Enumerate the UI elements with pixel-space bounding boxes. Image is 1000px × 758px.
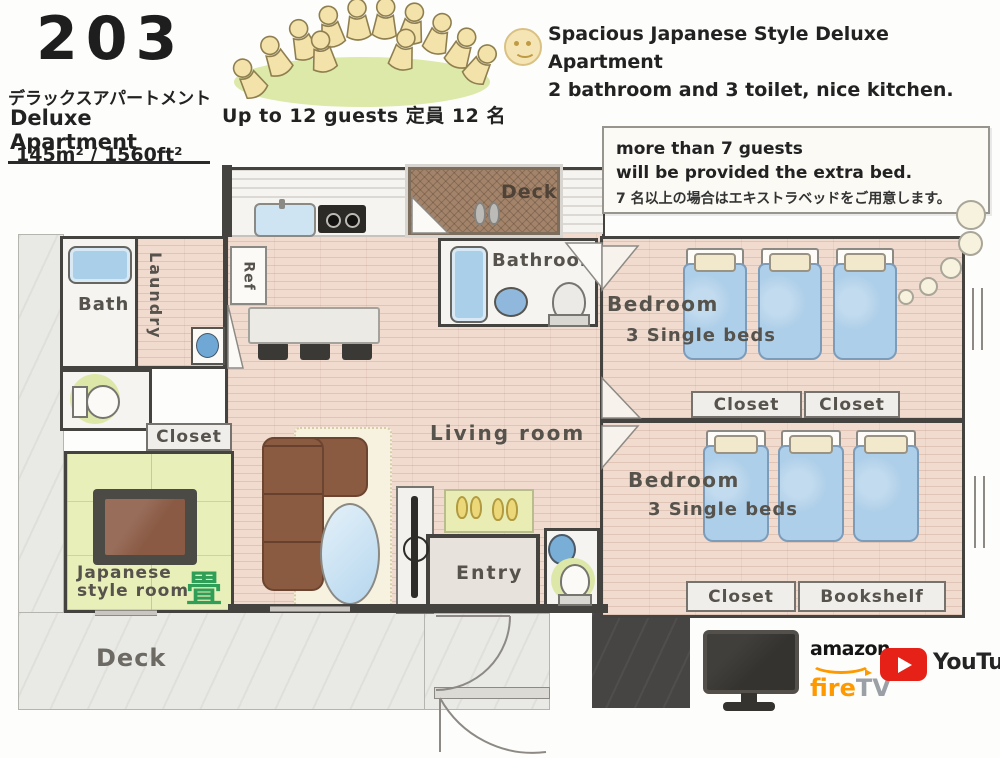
closet-left: Closet xyxy=(146,423,232,451)
slippers-icon xyxy=(492,498,504,521)
bedroom2-beds-label: 3 Single beds xyxy=(648,499,798,520)
tagline-line2: 2 bathroom and 3 toilet, nice kitchen. xyxy=(548,76,1000,104)
toilet-icon xyxy=(86,385,120,419)
slippers-icon xyxy=(506,498,518,521)
bathtub xyxy=(68,246,132,284)
note-line1: more than 7 guests xyxy=(616,137,976,161)
refrigerator: Ref xyxy=(230,246,267,305)
thought-bubble xyxy=(898,289,914,305)
thought-bubble xyxy=(940,257,962,279)
wall-segment xyxy=(222,165,232,237)
note-line2: will be provided the extra bed. xyxy=(616,161,976,185)
bedroom1-beds-label: 3 Single beds xyxy=(626,325,776,346)
japanese-room-label: Japanese style room xyxy=(77,564,189,600)
kitchen-sink xyxy=(254,203,316,237)
japanese-room-line1: Japanese xyxy=(77,564,189,582)
ref-label: Ref xyxy=(241,261,257,290)
kitchen-island xyxy=(248,307,380,344)
japanese-room-line2: style room xyxy=(77,582,189,600)
window-mark xyxy=(974,476,985,548)
slippers-icon xyxy=(456,496,468,519)
living-room-label: Living room xyxy=(430,421,585,445)
deck-bottom-label: Deck xyxy=(96,644,166,672)
bath-label: Bath xyxy=(78,294,129,315)
tatami-character: 畳 xyxy=(186,560,223,612)
room-number: 203 xyxy=(36,4,185,74)
entry-label: Entry xyxy=(456,562,523,584)
youtube-play-icon xyxy=(880,648,927,681)
tv-screen xyxy=(703,630,799,694)
toilet-icon xyxy=(560,564,590,598)
note-line3: 7 名以上の場合はエキストラベッドをご用意します。 xyxy=(616,188,976,208)
utility-dark-block xyxy=(592,613,690,708)
slippers-icon xyxy=(488,202,500,225)
deck-top-label: Deck xyxy=(501,181,558,203)
deck-bottom-area xyxy=(18,612,426,710)
fire-wordmark: fire xyxy=(810,674,856,702)
single-bed xyxy=(853,430,919,542)
bathtub xyxy=(450,246,488,323)
bar-stool xyxy=(342,342,372,360)
bar-stool xyxy=(258,342,288,360)
coffee-table xyxy=(320,503,380,605)
stove-burner-icon xyxy=(326,213,341,228)
floor-area: 145m² / 1560ft² xyxy=(16,144,183,166)
smiley-icon xyxy=(504,28,542,66)
entry-door-band xyxy=(434,687,550,699)
single-bed xyxy=(833,248,897,360)
window-mark xyxy=(972,288,983,350)
tv-mount-icon xyxy=(403,536,429,562)
bathroom-sink xyxy=(494,287,528,317)
sliding-door-mark xyxy=(95,610,157,616)
single-bed xyxy=(778,430,844,542)
bedroom1-closet1: Closet xyxy=(691,391,802,418)
bedroom2-label: Bedroom xyxy=(628,468,740,492)
tagline-line1: Spacious Japanese Style Deluxe Apartment xyxy=(548,20,1000,76)
extra-bed-note: more than 7 guests will be provided the … xyxy=(602,126,990,214)
stove-burner-icon xyxy=(345,213,360,228)
toilet-tank xyxy=(558,594,592,606)
faucet-icon xyxy=(279,199,285,209)
bedroom2-bookshelf: Bookshelf xyxy=(798,581,946,612)
thought-bubble xyxy=(919,277,938,296)
amazon-smile-icon xyxy=(810,652,872,674)
tagline: Spacious Japanese Style Deluxe Apartment… xyxy=(548,20,1000,104)
thought-bubble xyxy=(958,231,983,256)
slippers-icon xyxy=(470,496,482,519)
amazon-firetv-logo: amazon fireTV xyxy=(810,638,891,702)
laundry-label: Laundry xyxy=(146,252,165,340)
bedroom1-closet2: Closet xyxy=(804,391,900,418)
low-table-top xyxy=(105,499,185,555)
thought-bubble xyxy=(956,200,986,230)
youtube-wordmark: YouTube xyxy=(933,650,1000,675)
guests-illustration-icon xyxy=(226,0,498,108)
tv-illustration xyxy=(703,630,795,708)
slippers-icon xyxy=(474,202,486,225)
bar-stool xyxy=(300,342,330,360)
bathroom-label: Bathroom xyxy=(492,250,600,271)
toilet-tank xyxy=(548,314,590,327)
outside-band xyxy=(562,170,603,234)
laundry-sink-basin xyxy=(196,333,219,358)
sofa xyxy=(262,437,324,591)
bedroom1-label: Bedroom xyxy=(607,292,719,316)
bedroom2-closet: Closet xyxy=(686,581,796,612)
sliding-door-mark xyxy=(270,606,350,612)
